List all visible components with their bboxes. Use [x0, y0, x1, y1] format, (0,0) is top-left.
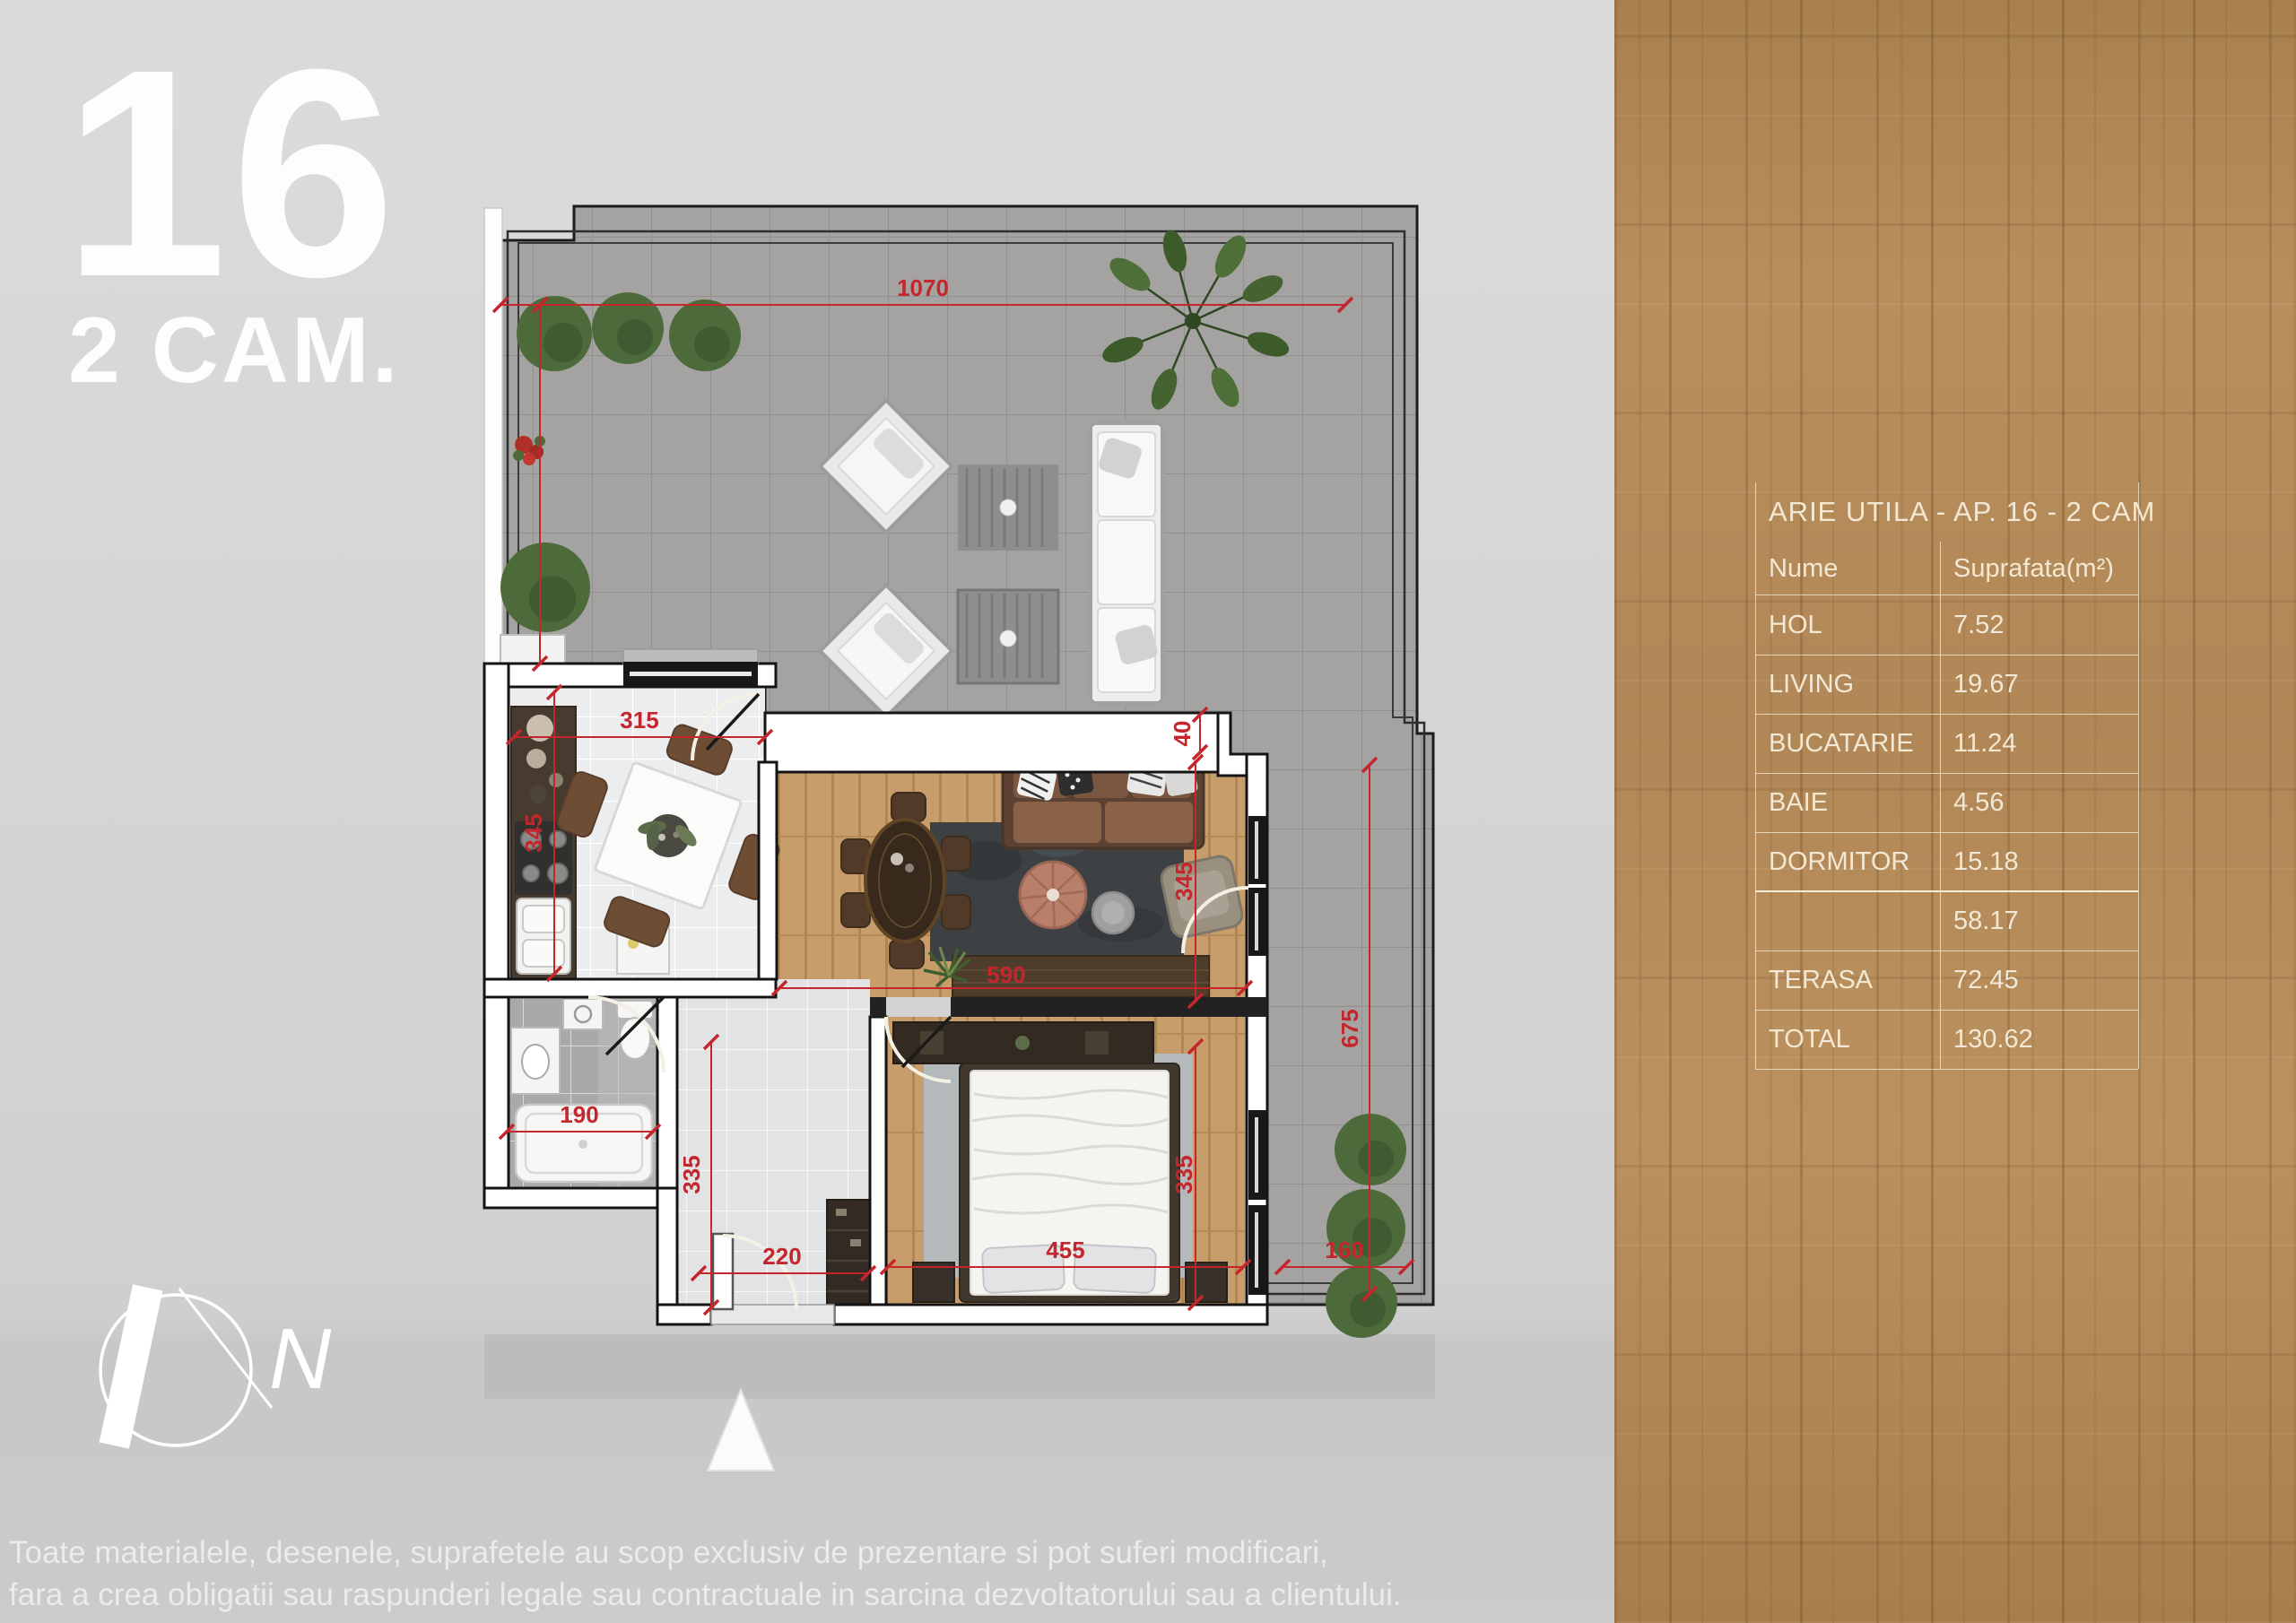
window-sill [623, 649, 758, 664]
bottom-wall-left [657, 1305, 711, 1324]
row-name: DORMITOR [1769, 832, 1909, 891]
pillow [1074, 1245, 1156, 1294]
dim-bedroom-depth: 335 [1170, 1155, 1197, 1193]
living-top-wall [765, 713, 1218, 772]
compass-line [179, 1289, 272, 1408]
sink-vanity [511, 1028, 560, 1094]
patio-table [958, 590, 1058, 683]
dim-bedroom-width: 455 [1046, 1237, 1084, 1263]
outdoor-sofa [1091, 423, 1162, 703]
row-area: 58.17 [1953, 891, 2019, 950]
column-header-area: Suprafata(m²) [1953, 539, 2114, 598]
page: 1070 315 345 40 345 590 675 190 335 220 … [0, 0, 2296, 1623]
dim-kitchen-width: 315 [620, 707, 658, 733]
bottom-wall [834, 1305, 1267, 1324]
washing-machine [563, 999, 603, 1029]
terrace-left-wall [484, 208, 502, 665]
row-name: HOL [1769, 595, 1822, 655]
dim-bathroom-width: 190 [560, 1101, 598, 1128]
dim-kitchen-depth: 345 [520, 813, 547, 852]
dim-hall-depth: 335 [678, 1155, 705, 1193]
dim-terrace-side: 675 [1336, 1009, 1363, 1047]
compass-needle [100, 1284, 163, 1448]
row-name: TERASA [1769, 950, 1873, 1010]
row-area: 4.56 [1953, 773, 2004, 832]
disclaimer-line-1: Toate materialele, desenele, suprafetele… [9, 1532, 1402, 1574]
table-border-right [2138, 482, 2139, 1069]
toilet [617, 1001, 653, 1059]
column-header-name: Nume [1769, 539, 1838, 598]
patio-table [958, 464, 1058, 551]
table-rule [1755, 1069, 2138, 1070]
dim-living-width: 590 [987, 961, 1025, 988]
row-area: 7.52 [1953, 595, 2004, 655]
bathroom-right-wall [657, 997, 677, 1188]
hall-closet [827, 1200, 870, 1315]
entrance-arrow [708, 1390, 774, 1471]
row-area: 72.45 [1953, 950, 2019, 1010]
dim-living-depth: 345 [1170, 862, 1197, 900]
row-name: TOTAL [1769, 1010, 1850, 1069]
unit-type: 2 CAM. [68, 298, 400, 404]
bedroom-top-wall [870, 997, 1267, 1017]
dim-hall-width: 220 [762, 1243, 801, 1270]
row-area: 15.18 [1953, 832, 2019, 891]
row-area: 11.24 [1953, 714, 2016, 773]
dim-terrace-front: 1070 [897, 274, 949, 301]
compass: N [100, 1284, 332, 1448]
table-title: ARIE UTILA - AP. 16 - 2 CAM [1769, 482, 2155, 542]
bathroom-bottom-wall [484, 1188, 677, 1208]
disclaimer-line-2: fara a crea obligatii sau raspunderi leg… [9, 1574, 1402, 1616]
left-wall [484, 664, 509, 1202]
disclaimer: Toate materialele, desenele, suprafetele… [9, 1532, 1402, 1616]
nightstand [1186, 1263, 1227, 1302]
north-label: N [269, 1311, 332, 1407]
dim-side-terrace: 160 [1325, 1237, 1363, 1263]
plan-shadow [484, 1334, 1435, 1399]
unit-number: 16 [63, 25, 399, 321]
kitchen-right-wall [759, 762, 777, 979]
row-area: 19.67 [1953, 655, 2019, 714]
row-name: BAIE [1769, 773, 1828, 832]
table-border-left [1755, 482, 1756, 1069]
bedroom-left-wall [870, 1017, 886, 1305]
kitchen-bottom-wall [484, 979, 776, 997]
table-divider [1940, 542, 1941, 1069]
coffee-table [1020, 862, 1086, 928]
wood-panel: ARIE UTILA - AP. 16 - 2 CAM Nume Suprafa… [1614, 0, 2296, 1623]
nightstand [913, 1263, 954, 1302]
row-name: BUCATARIE [1769, 714, 1914, 773]
row-name: LIVING [1769, 655, 1854, 714]
dim-wall-step: 40 [1169, 721, 1196, 747]
dresser [893, 1022, 1153, 1063]
row-area: 130.62 [1953, 1010, 2033, 1069]
